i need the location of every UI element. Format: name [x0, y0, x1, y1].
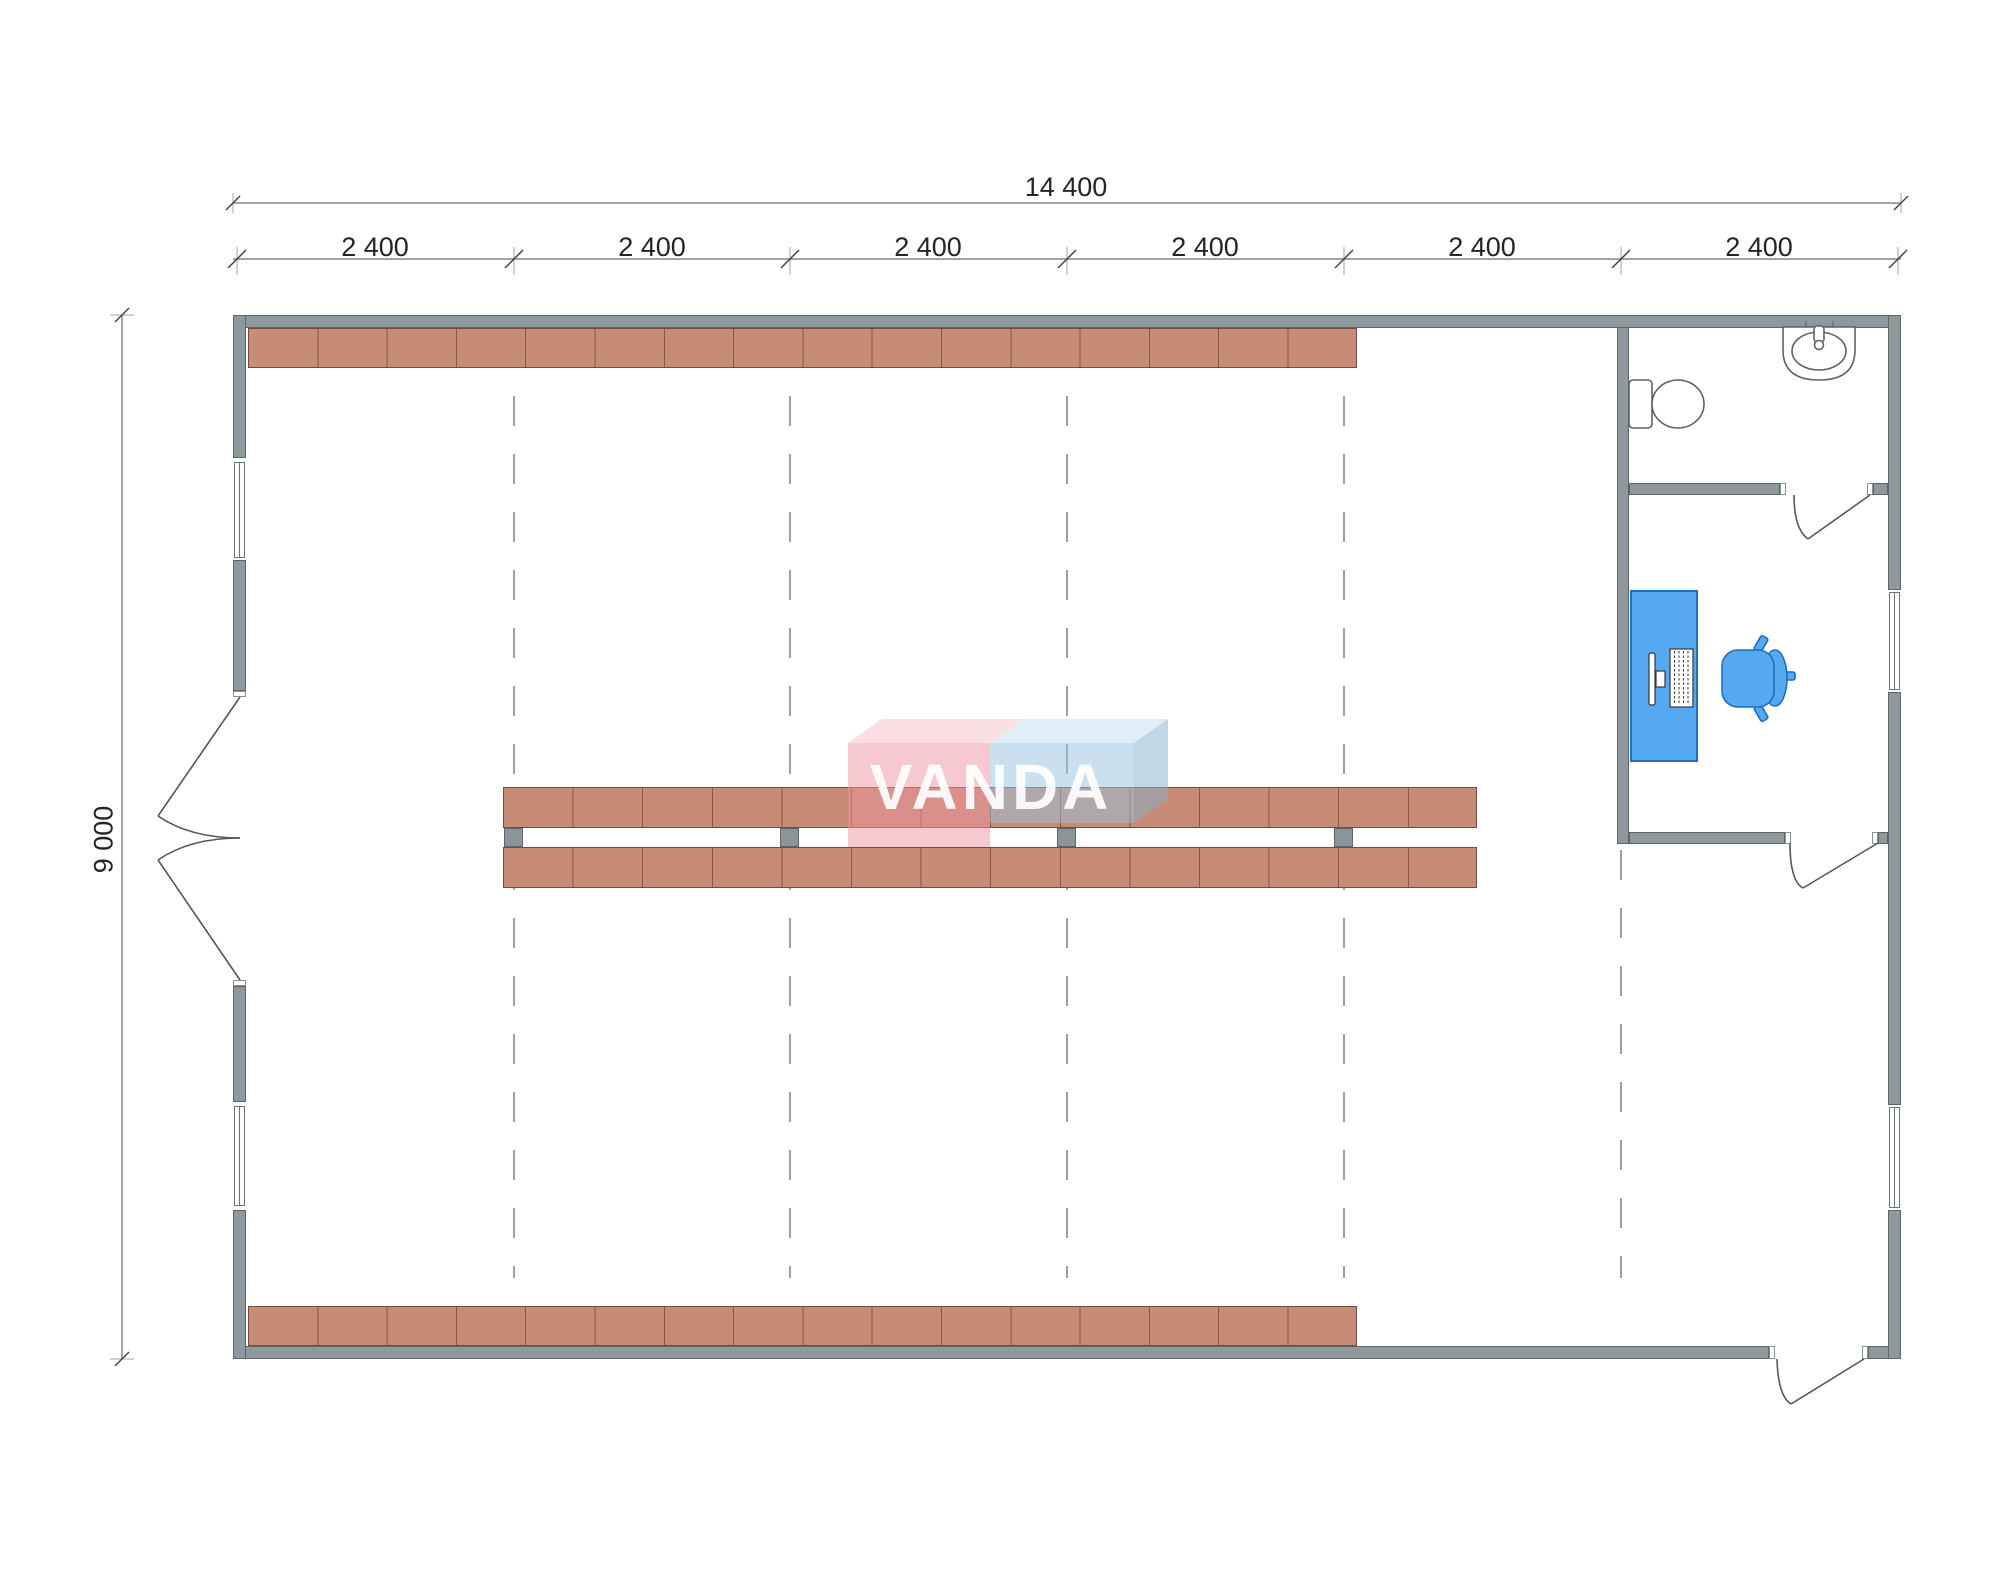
- jamb-office-door-right: [1872, 832, 1878, 844]
- shelving-rack-center-upper: [503, 787, 1477, 828]
- wall-interior-vertical: [1617, 327, 1629, 844]
- office-chair-icon: [1722, 635, 1795, 722]
- window-left-lower-glazing: [239, 1107, 240, 1205]
- wall-left-seg1: [233, 315, 246, 458]
- shelving-rack-north: [248, 328, 1357, 368]
- toilet-icon: [1629, 380, 1704, 428]
- wall-office-south-left: [1629, 832, 1785, 844]
- watermark-blue-cube-top: [990, 719, 1168, 743]
- wall-wc-south-right: [1873, 483, 1888, 495]
- jamb-exit-door-left: [1769, 1346, 1775, 1359]
- dimension-bay-5: 2 400: [1437, 232, 1527, 263]
- support-column-3: [1057, 828, 1076, 847]
- support-column-1: [504, 828, 523, 847]
- dimension-linework: [110, 193, 1908, 1366]
- dimension-bay-1: 2 400: [330, 232, 420, 263]
- wall-right-seg2: [1888, 692, 1901, 1105]
- wc-swing-door: [1794, 495, 1870, 539]
- exit-swing-door: [1777, 1359, 1864, 1404]
- dimension-bay-2: 2 400: [607, 232, 697, 263]
- office-desk: [1630, 590, 1698, 762]
- dimension-bay-4: 2 400: [1160, 232, 1250, 263]
- dimension-bay-3: 2 400: [883, 232, 973, 263]
- double-swing-door-left: [158, 697, 240, 980]
- dimension-bay-6: 2 400: [1714, 232, 1804, 263]
- wall-right-seg3: [1888, 1210, 1901, 1359]
- window-right-upper-glazing: [1894, 593, 1895, 689]
- shelving-rack-south: [248, 1306, 1357, 1346]
- jamb-office-door-left: [1785, 832, 1791, 844]
- jamb-wc-door-left: [1780, 483, 1786, 495]
- wall-bottom-main: [233, 1346, 1769, 1359]
- watermark-pink-cube-top: [848, 719, 1024, 743]
- window-left-upper-glazing: [239, 463, 240, 557]
- wall-right-seg1: [1888, 315, 1901, 590]
- floor-plan-canvas: 14 400 2 400 2 400 2 400 2 400 2 400 2 4…: [0, 0, 2000, 1574]
- dimension-total-width: 14 400: [1006, 172, 1126, 203]
- jamb-double-door-top: [233, 691, 246, 697]
- wall-left-seg2: [233, 560, 246, 691]
- sink-icon: [1783, 321, 1855, 380]
- support-column-4: [1334, 828, 1353, 847]
- wall-left-seg4: [233, 1210, 246, 1359]
- office-swing-door: [1790, 843, 1878, 888]
- support-column-2: [780, 828, 799, 847]
- wall-office-south-right: [1878, 832, 1888, 844]
- dimension-total-height: 9 000: [89, 800, 120, 880]
- jamb-exit-door-right: [1862, 1346, 1868, 1359]
- wall-top: [233, 315, 1901, 328]
- wall-wc-south-left: [1629, 483, 1780, 495]
- jamb-wc-door-right: [1867, 483, 1873, 495]
- jamb-double-door-bottom: [233, 980, 246, 986]
- window-right-lower-glazing: [1894, 1108, 1895, 1207]
- wall-left-seg3: [233, 986, 246, 1102]
- shelving-rack-center-lower: [503, 847, 1477, 888]
